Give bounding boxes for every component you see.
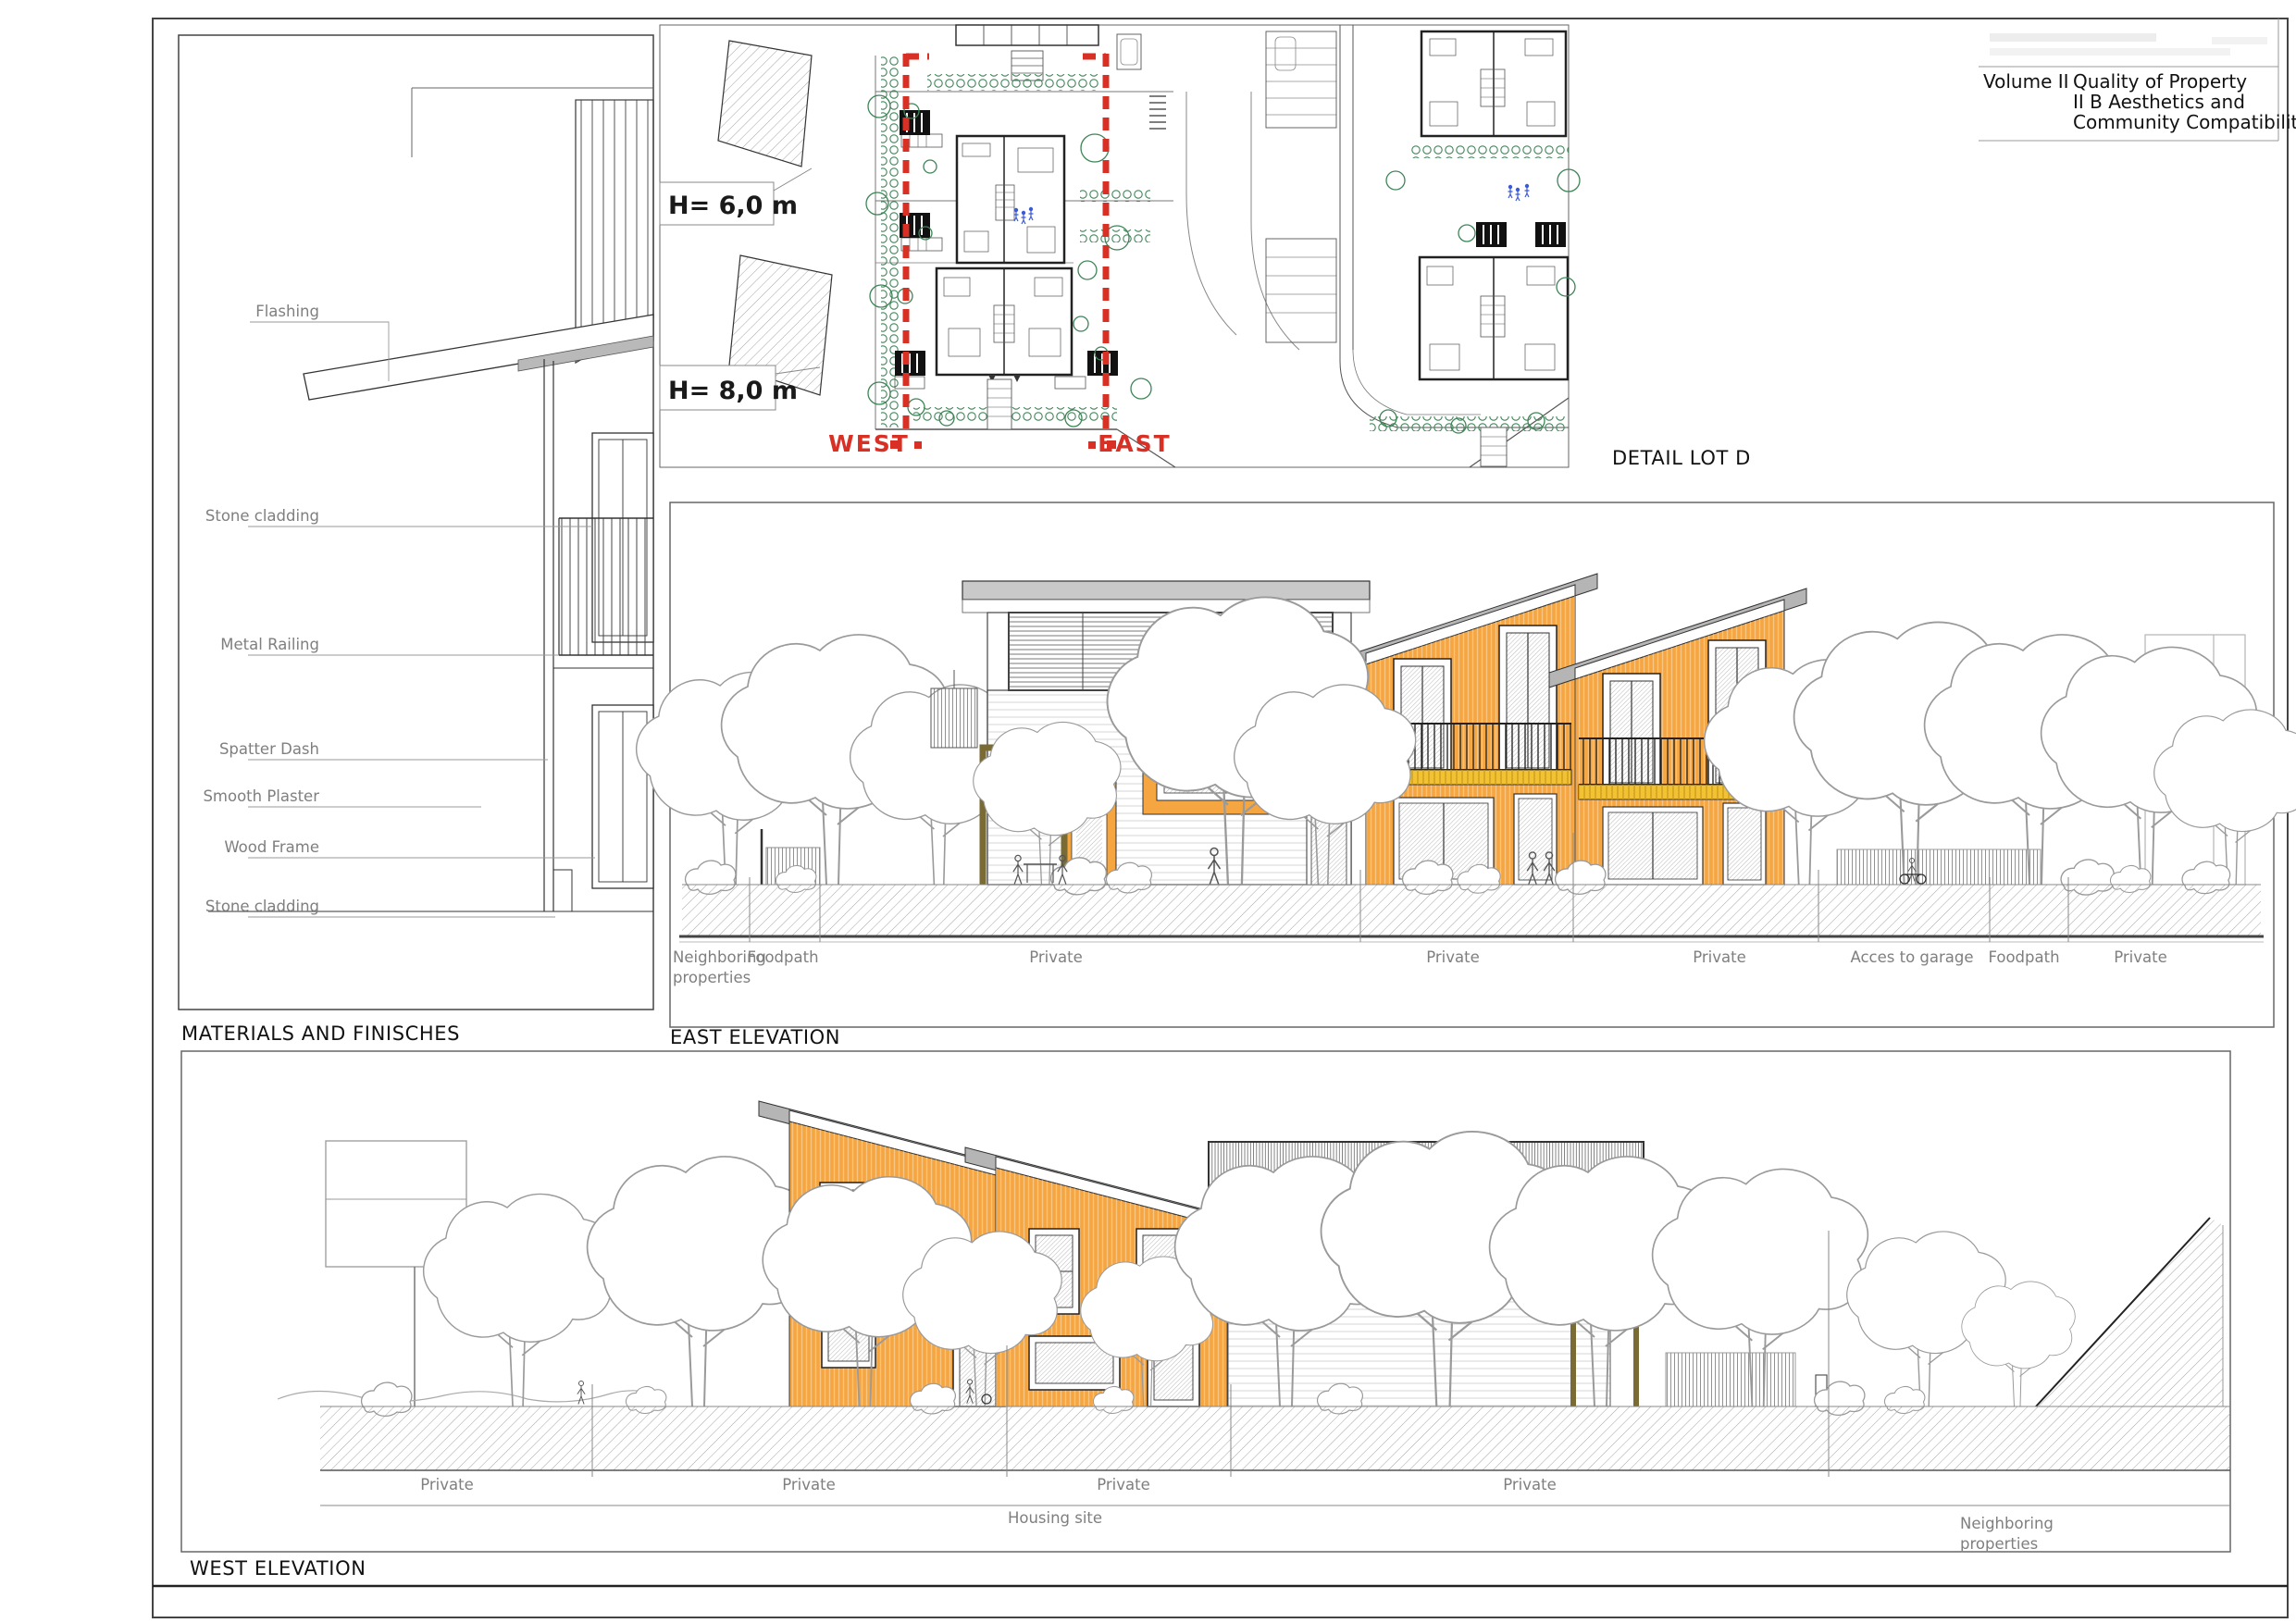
site-east-label: EAST bbox=[1098, 430, 1171, 457]
east-label-private-1: Private bbox=[1029, 948, 1083, 966]
east-label-foodpath-1: Foodpath bbox=[747, 948, 818, 966]
west-label-private-3: Private bbox=[1097, 1476, 1150, 1493]
east-label-neighboring-2: properties bbox=[673, 969, 751, 986]
west-label-private-4: Private bbox=[1503, 1476, 1557, 1493]
title-block-line1: Quality of Property bbox=[2073, 70, 2247, 93]
east-label-private-2: Private bbox=[1426, 948, 1480, 966]
title-block-line2: II B Aesthetics and bbox=[2073, 91, 2245, 113]
ghost-text bbox=[2212, 37, 2267, 44]
site-plan: H= 6,0 m H= 8,0 m WEST EAST DETAIL LOT D bbox=[660, 25, 1751, 469]
site-plan-title: DETAIL LOT D bbox=[1612, 447, 1751, 469]
east-label-access-garage: Acces to garage bbox=[1850, 948, 1973, 966]
west-label-private-2: Private bbox=[782, 1476, 836, 1493]
materials-label-spatter-dash: Spatter Dash bbox=[219, 740, 319, 758]
materials-leader-lines bbox=[248, 322, 595, 917]
materials-label-flashing: Flashing bbox=[255, 303, 319, 320]
east-elevation-title: EAST ELEVATION bbox=[670, 1026, 840, 1048]
west-label-housing-site: Housing site bbox=[1008, 1509, 1102, 1527]
west-ground-hatch bbox=[320, 1406, 2230, 1470]
materials-label-smooth-plaster: Smooth Plaster bbox=[203, 787, 319, 805]
east-label-private-3: Private bbox=[1693, 948, 1746, 966]
west-label-neighboring-2: properties bbox=[1960, 1535, 2038, 1553]
west-fence bbox=[1666, 1353, 1795, 1406]
materials-label-stone-cladding-1: Stone cladding bbox=[205, 507, 319, 525]
drawing-sheet: Volume II Quality of Property II B Aesth… bbox=[0, 0, 2296, 1623]
east-label-foodpath-2: Foodpath bbox=[1988, 948, 2059, 966]
east-ground-hatch bbox=[682, 885, 2261, 936]
materials-panel-title: MATERIALS AND FINISCHES bbox=[181, 1022, 460, 1045]
ghost-text bbox=[1990, 48, 2230, 56]
west-label-neighboring-1: Neighboring bbox=[1960, 1515, 2054, 1532]
title-block-line3: Community Compatibility bbox=[2073, 111, 2296, 133]
title-block: Volume II Quality of Property II B Aesth… bbox=[1979, 19, 2296, 141]
materials-panel: Flashing Stone cladding Metal Railing Sp… bbox=[179, 35, 653, 1045]
materials-label-wood-frame: Wood Frame bbox=[224, 838, 319, 856]
materials-label-stone-cladding-2: Stone cladding bbox=[205, 898, 319, 915]
site-height-label-2: H= 8,0 m bbox=[668, 377, 798, 405]
site-west-label: WEST bbox=[828, 430, 910, 457]
east-fence bbox=[1837, 849, 2041, 885]
sheet-svg: Volume II Quality of Property II B Aesth… bbox=[0, 0, 2296, 1623]
west-elevation-panel: Private Private Private Private Housing … bbox=[181, 1051, 2230, 1580]
title-block-volume: Volume II bbox=[1983, 70, 2069, 93]
materials-label-metal-railing: Metal Railing bbox=[220, 636, 319, 653]
east-elevation-panel: Neighboring properties Foodpath Private … bbox=[637, 502, 2296, 1048]
west-label-private-1: Private bbox=[420, 1476, 474, 1493]
east-label-private-4: Private bbox=[2114, 948, 2167, 966]
ghost-text bbox=[1990, 33, 2156, 42]
site-height-label-1: H= 6,0 m bbox=[668, 192, 798, 220]
west-elevation-title: WEST ELEVATION bbox=[190, 1557, 366, 1580]
